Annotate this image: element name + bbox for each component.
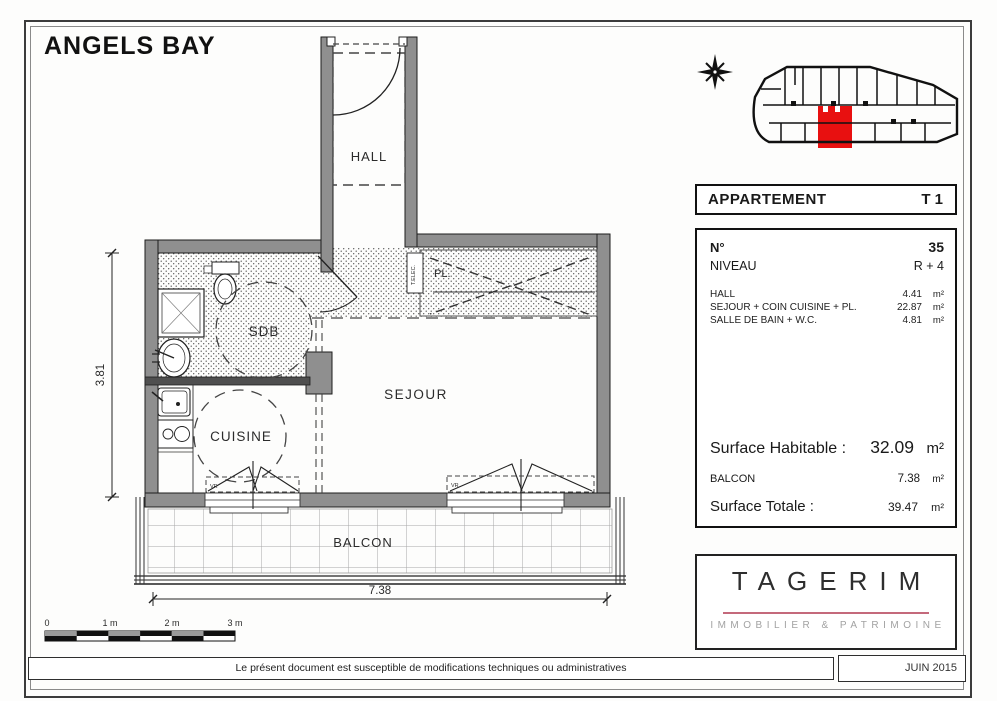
room-area-unit: m² [922,302,944,313]
surface-habitable-value: 32.09 [852,437,914,458]
room-area-value: 22.87 [876,302,922,313]
balcon-area-row: BALCON 7.38 m² [710,473,944,485]
balcon-area-value: 7.38 [870,473,920,485]
scale-tick-1: 1 m [102,618,117,628]
apartment-info-box: N° 35 NIVEAU R + 4 HALL 4.41 m² SEJOUR +… [695,228,957,528]
site-plan [685,45,985,170]
room-area-label: SEJOUR + COIN CUISINE + PL. [710,302,876,313]
room-label-hall: HALL [351,149,388,164]
agency-logo-name: TAGERIM [697,566,955,597]
dashed-partitions [312,318,597,493]
surface-habitable-row: Surface Habitable : 32.09 m² [710,437,944,458]
room-area-row: SEJOUR + COIN CUISINE + PL. 22.87 m² [710,302,944,313]
entrance-door-arc [333,48,400,115]
balcon-area-label: BALCON [710,473,870,485]
surface-totale-label: Surface Totale : [710,498,866,515]
level-value: R + 4 [914,259,944,273]
label-vr-left: VR [210,484,218,490]
apartment-type: T 1 [921,191,955,208]
document-date-box: JUIN 2015 [838,655,966,682]
room-area-value: 4.81 [876,315,922,326]
footer-disclaimer: Le présent document est susceptible de m… [28,657,834,680]
apartment-header: APPARTEMENT T 1 [695,184,957,215]
dimension-height [105,249,119,501]
scale-tick-2: 2 m [164,618,179,628]
room-area-label: HALL [710,289,876,300]
surface-totale-row: Surface Totale : 39.47 m² [710,498,944,515]
surface-totale-value: 39.47 [866,500,918,514]
room-label-sejour: SEJOUR [384,387,448,402]
room-area-unit: m² [922,289,944,300]
room-label-cuisine: CUISINE [210,429,272,444]
unit-number-row: N° 35 [710,239,944,255]
apartment-header-label: APPARTEMENT [697,191,921,208]
room-area-unit: m² [922,315,944,326]
surface-totale-unit: m² [918,502,944,514]
room-area-row: HALL 4.41 m² [710,289,944,300]
cooktop [158,420,193,448]
agency-logo-divider [723,612,929,614]
room-area-label: SALLE DE BAIN + W.C. [710,315,876,326]
unit-number-value: 35 [928,239,944,255]
surface-habitable-unit: m² [914,440,944,457]
room-label-balcon: BALCON [333,535,392,550]
plan-sheet: ANGELS BAY [0,0,997,701]
room-label-placard: PL. [434,268,451,280]
dimension-width-value: 7.38 [369,585,391,597]
scale-tick-3: 3 m [227,618,242,628]
room-area-value: 4.41 [876,289,922,300]
label-vr-right: VR [451,483,459,489]
level-row: NIVEAU R + 4 [710,259,944,273]
floor-plan: 0 1 m 2 m 3 m HALL SDB CUISINE SEJOUR BA… [0,0,690,665]
agency-logo-tagline: IMMOBILIER & PATRIMOINE [697,620,955,631]
scale-tick-0: 0 [44,618,49,628]
building-outline [754,67,957,148]
room-area-row: SALLE DE BAIN + W.C. 4.81 m² [710,315,944,326]
level-label: NIVEAU [710,259,914,273]
compass-rose-icon [697,54,733,90]
room-label-sdb: SDB [249,324,280,339]
scale-bar: 0 1 m 2 m 3 m [44,618,242,641]
shower [158,289,204,337]
kitchen-sink [152,388,190,416]
document-date: JUIN 2015 [905,662,965,674]
surface-habitable-label: Surface Habitable : [710,440,852,458]
agency-logo: TAGERIM IMMOBILIER & PATRIMOINE [695,554,957,650]
label-elec-panel: T.ELEC. [411,264,417,285]
balcon-area-unit: m² [920,474,944,485]
unit-number-label: N° [710,240,928,255]
dimension-height-value: 3.81 [95,364,107,386]
